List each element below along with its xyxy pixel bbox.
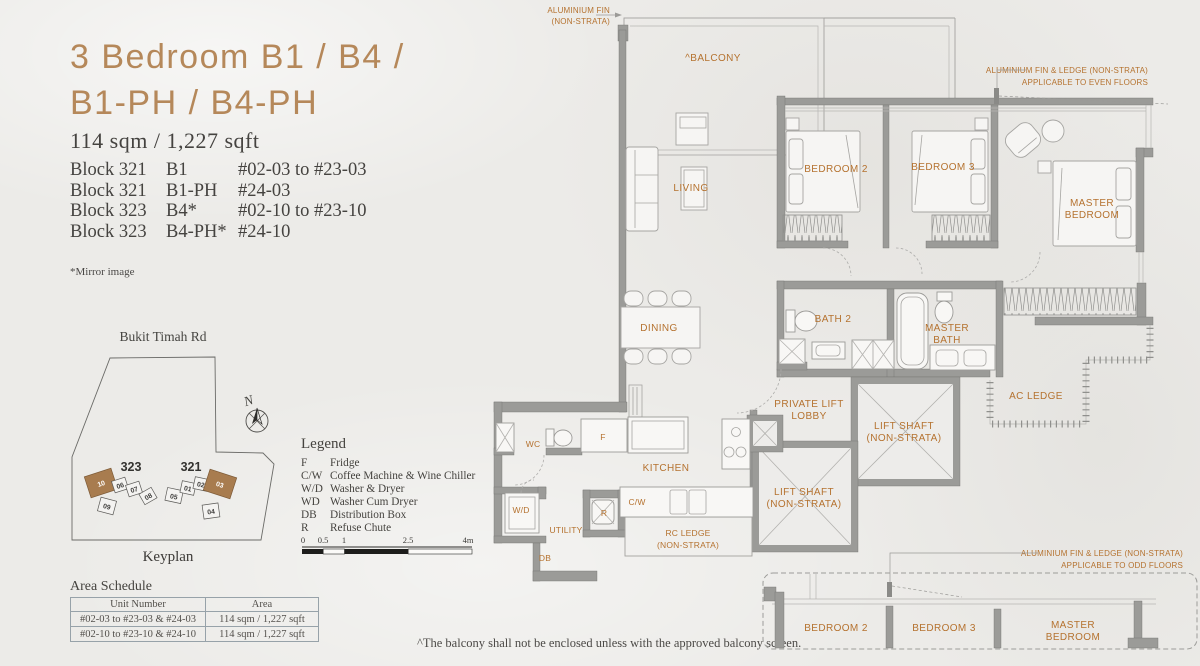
distribution-box-label: DB bbox=[539, 553, 551, 563]
wc-door-arc bbox=[514, 455, 544, 485]
svg-text:04: 04 bbox=[207, 508, 216, 516]
plan-drawing: Bukit Timah Rd N 323 10 06 bbox=[0, 0, 1200, 666]
dining-chair bbox=[624, 291, 643, 306]
kitchen-label: KITCHEN bbox=[643, 463, 690, 474]
scale-segment bbox=[323, 549, 344, 554]
tall-cabinet bbox=[629, 385, 642, 417]
nightstand bbox=[1038, 161, 1051, 173]
north-label: N bbox=[241, 392, 256, 410]
scale-tick-25: 2.5 bbox=[403, 535, 414, 545]
toilet-icon bbox=[935, 301, 953, 323]
fin-marker bbox=[887, 582, 892, 597]
svg-text:(NON-STRATA): (NON-STRATA) bbox=[657, 540, 719, 550]
svg-text:(NON-STRATA): (NON-STRATA) bbox=[767, 499, 842, 510]
svg-text:BATH: BATH bbox=[933, 335, 961, 346]
svg-text:(NON-STRATA): (NON-STRATA) bbox=[551, 17, 610, 26]
living-label: LIVING bbox=[673, 183, 708, 194]
private-lift-lobby-label: PRIVATE LIFT bbox=[774, 399, 843, 410]
keyplan-road-label: Bukit Timah Rd bbox=[119, 329, 206, 344]
ac-ledge-railing bbox=[990, 325, 1150, 424]
sofa bbox=[626, 147, 658, 231]
lift-shaft-upper-label: LIFT SHAFT bbox=[874, 421, 934, 432]
dining-label: DINING bbox=[640, 323, 677, 334]
side-table bbox=[1042, 120, 1064, 142]
keyplan-unit-03-highlighted: 03 bbox=[203, 469, 236, 499]
bedroom2-label: BEDROOM 2 bbox=[804, 164, 868, 175]
dining-chair bbox=[672, 349, 691, 364]
master-bedroom-furniture bbox=[1002, 119, 1136, 246]
svg-text:BEDROOM: BEDROOM bbox=[1046, 632, 1100, 643]
scale-tick-1: 1 bbox=[342, 535, 346, 545]
svg-text:BEDROOM: BEDROOM bbox=[1065, 210, 1119, 221]
toilet-tank bbox=[546, 429, 554, 446]
arrowhead bbox=[615, 13, 622, 18]
scale-tick-4m: 4m bbox=[463, 535, 474, 545]
bedroom2-door-arc bbox=[823, 248, 851, 276]
dashed-boundary bbox=[763, 573, 1197, 649]
lift-shaft-lower-label: LIFT SHAFT bbox=[774, 487, 834, 498]
refuse-chute-label: R bbox=[601, 508, 607, 518]
bathtub bbox=[897, 293, 928, 369]
coffee-wine-label: C/W bbox=[628, 497, 645, 507]
nightstand bbox=[975, 118, 988, 130]
scale-bar: 0 0.5 1 2.5 4m bbox=[301, 535, 474, 554]
dining-chair bbox=[672, 291, 691, 306]
washer-dryer-label: W/D bbox=[512, 505, 529, 515]
svg-text:APPLICABLE TO EVEN FLOORS: APPLICABLE TO EVEN FLOORS bbox=[1022, 78, 1148, 87]
aluminium-fin-note: ALUMINIUM FIN bbox=[547, 6, 610, 15]
kitchen-counter-top bbox=[628, 417, 688, 453]
svg-text:APPLICABLE TO ODD FLOORS: APPLICABLE TO ODD FLOORS bbox=[1061, 561, 1183, 570]
pillow bbox=[789, 139, 803, 169]
north-compass-icon: N bbox=[241, 392, 268, 432]
armchair bbox=[1002, 119, 1045, 161]
master-door-arc bbox=[1010, 252, 1040, 282]
wardrobe-bedroom2 bbox=[783, 215, 842, 241]
odd-bedroom3-label: BEDROOM 3 bbox=[912, 623, 976, 634]
fin-even-floors-note: ALUMINIUM FIN & LEDGE (NON-STRATA) bbox=[986, 66, 1148, 75]
scale-segment bbox=[345, 549, 409, 554]
balcony-label: ^BALCONY bbox=[685, 53, 741, 64]
dining-chair bbox=[624, 349, 643, 364]
bath2-label: BATH 2 bbox=[815, 314, 852, 325]
fin-marker bbox=[994, 88, 999, 104]
wardrobe-master bbox=[1004, 288, 1136, 315]
living-furniture bbox=[626, 113, 708, 417]
keyplan: Bukit Timah Rd N 323 10 06 bbox=[72, 329, 274, 565]
nightstand bbox=[786, 118, 799, 130]
master-bedroom-label: MASTER bbox=[1070, 198, 1114, 209]
scale-segment bbox=[408, 549, 472, 554]
keyplan-block-323-label: 323 bbox=[121, 460, 142, 474]
toilet-tank bbox=[786, 310, 795, 332]
keyplan-unit-09: 09 bbox=[97, 497, 116, 515]
toilet-tank bbox=[937, 292, 952, 301]
dining-chair bbox=[648, 349, 667, 364]
bedroom3-label: BEDROOM 3 bbox=[911, 162, 975, 173]
keyplan-unit-04: 04 bbox=[202, 503, 220, 519]
rc-ledge-label: RC LEDGE bbox=[665, 528, 710, 538]
stove-counter bbox=[722, 419, 750, 469]
keyplan-caption: Keyplan bbox=[143, 549, 194, 565]
fin-odd-floors-note: ALUMINIUM FIN & LEDGE (NON-STRATA) bbox=[1021, 549, 1183, 558]
keyplan-block-321-label: 321 bbox=[181, 460, 202, 474]
private-lift bbox=[747, 415, 783, 452]
wardrobe-bedroom3 bbox=[932, 215, 990, 241]
floorplan-brochure-page: 3 Bedroom B1 / B4 / B1-PH / B4-PH 114 sq… bbox=[0, 0, 1200, 666]
svg-text:(NON-STRATA): (NON-STRATA) bbox=[867, 433, 942, 444]
ac-ledge-label: AC LEDGE bbox=[1009, 391, 1063, 402]
utility-label: UTILITY bbox=[549, 525, 582, 535]
pillow bbox=[1116, 168, 1131, 200]
master-bath-label: MASTER bbox=[925, 323, 969, 334]
wc-label: WC bbox=[526, 439, 541, 449]
odd-floor-section: BEDROOM 2 BEDROOM 3 MASTER BEDROOM bbox=[763, 573, 1197, 649]
bedroom3-door-arc bbox=[896, 248, 922, 274]
floor-plan: ^BALCONY LIVING DINING BEDROOM 2 BEDROOM… bbox=[494, 6, 1197, 649]
scale-tick-0: 0 bbox=[301, 535, 305, 545]
fridge-label: F bbox=[600, 432, 605, 442]
pillow bbox=[789, 174, 803, 204]
tv-console bbox=[676, 113, 708, 145]
scale-segment bbox=[302, 549, 323, 554]
odd-bedroom2-label: BEDROOM 2 bbox=[804, 623, 868, 634]
dining-chair bbox=[648, 291, 667, 306]
keyplan-boundary bbox=[72, 357, 274, 540]
toilet-icon bbox=[554, 430, 572, 446]
pillow bbox=[971, 174, 985, 204]
scale-tick-05: 0.5 bbox=[318, 535, 329, 545]
odd-master-label: MASTER bbox=[1051, 620, 1095, 631]
svg-text:LOBBY: LOBBY bbox=[791, 411, 826, 422]
